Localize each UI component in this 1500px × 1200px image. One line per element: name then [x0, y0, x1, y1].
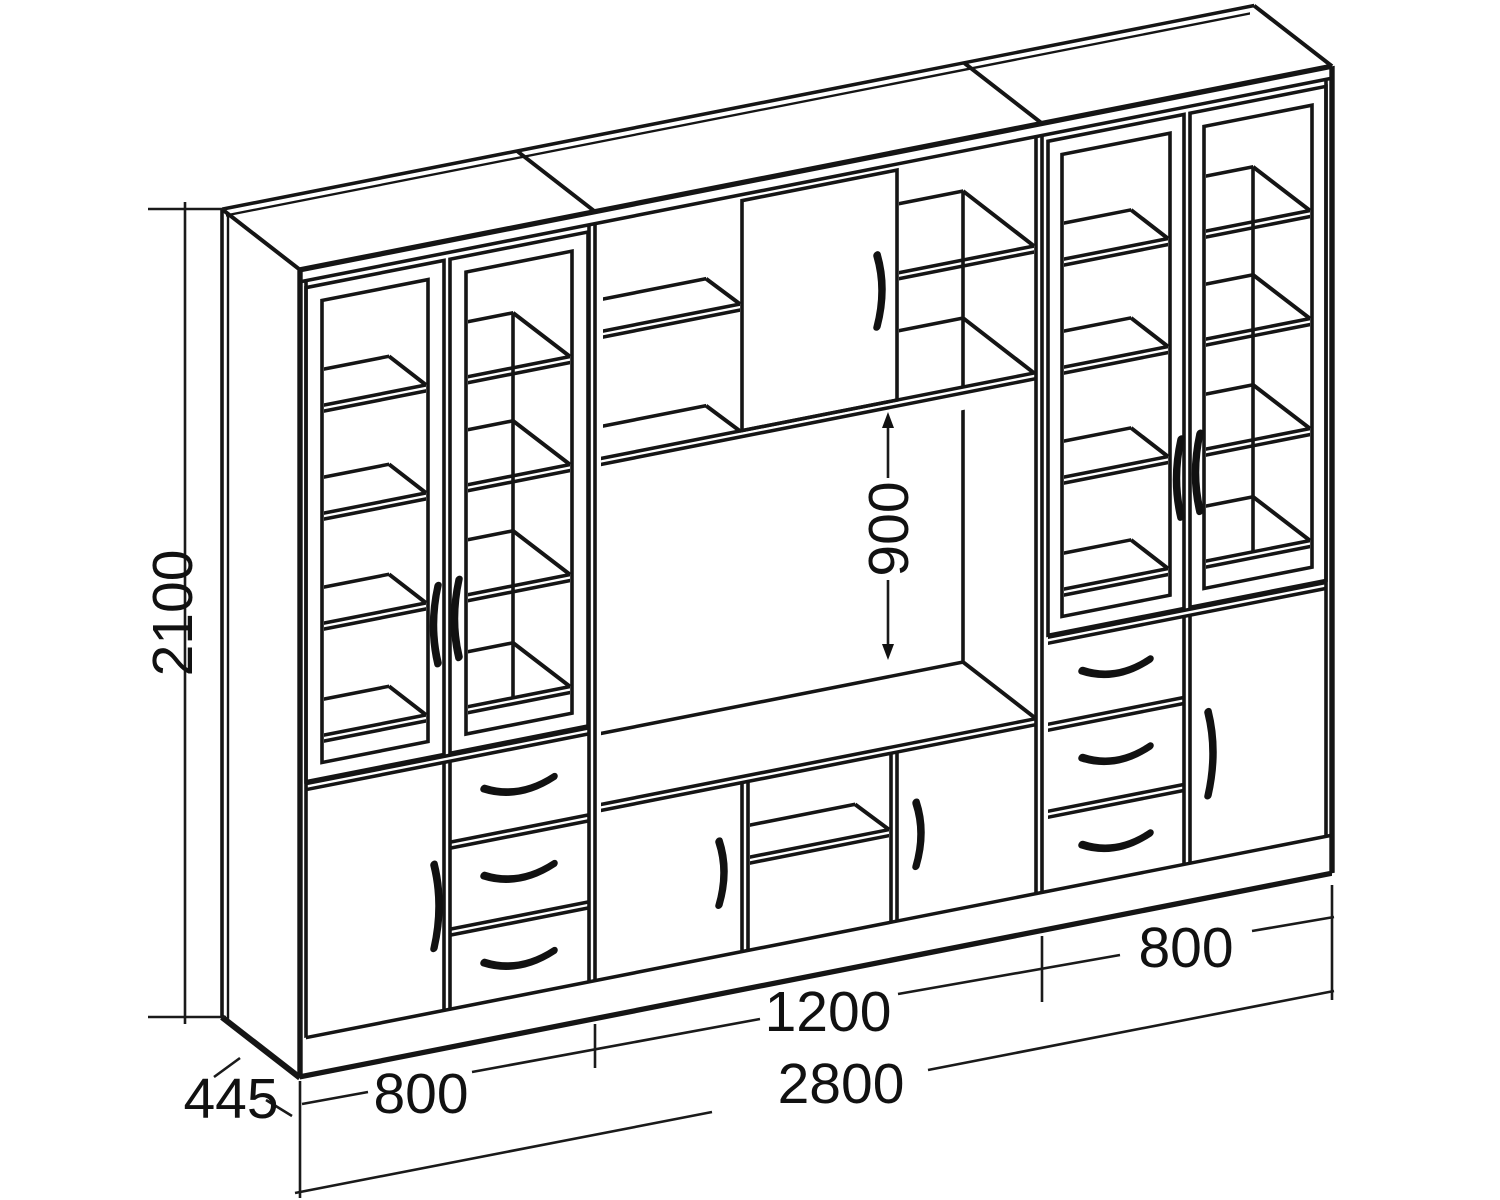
dim-left-width-label: 800 — [373, 1062, 468, 1126]
dim-height-label: 2100 — [141, 550, 205, 677]
furniture-technical-drawing: 2100 445 800 1200 800 2800 900 — [0, 0, 1500, 1200]
blueprint-canvas: 2100 445 800 1200 800 2800 900 — [0, 0, 1500, 1200]
dim-depth-label: 445 — [183, 1067, 278, 1131]
dimension-depth-445: 445 — [183, 1058, 292, 1131]
dim-right-width-label: 800 — [1138, 916, 1233, 980]
dim-center-width-label: 1200 — [765, 980, 892, 1044]
dim-total-width-label: 2800 — [778, 1052, 905, 1116]
dim-niche-label: 900 — [857, 481, 921, 576]
